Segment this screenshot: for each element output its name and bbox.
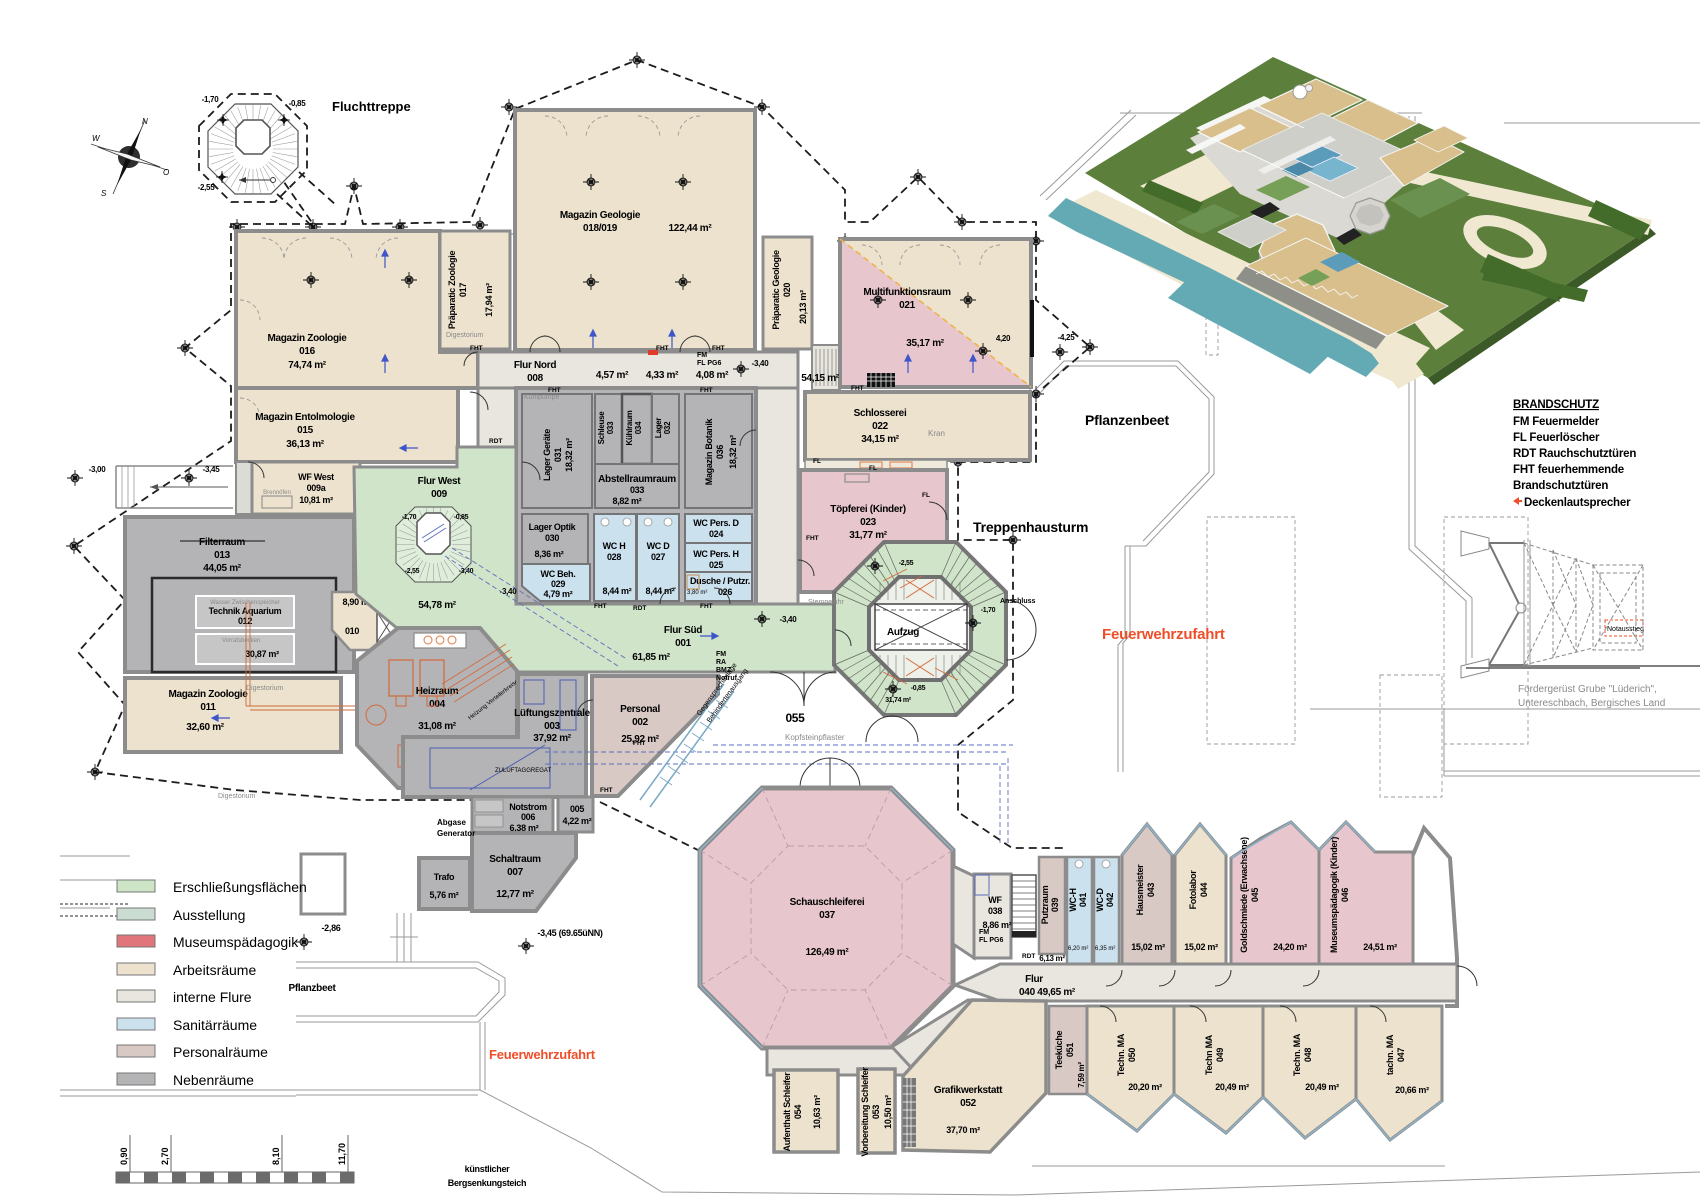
svg-text:032: 032: [663, 421, 672, 434]
svg-text:006: 006: [521, 812, 535, 822]
svg-text:-2,86: -2,86: [321, 923, 340, 933]
svg-text:Präparatic Zoologie: Präparatic Zoologie: [447, 251, 457, 330]
svg-text:Grafikwerkstatt: Grafikwerkstatt: [934, 1085, 1003, 1096]
svg-text:036: 036: [715, 445, 725, 459]
svg-text:055: 055: [785, 711, 805, 725]
svg-text:051: 051: [1065, 1043, 1075, 1057]
svg-text:-0,85: -0,85: [454, 514, 469, 521]
svg-text:20,13 m²: 20,13 m²: [798, 290, 808, 324]
svg-text:8,36 m²: 8,36 m²: [535, 549, 564, 559]
svg-text:050: 050: [1127, 1048, 1137, 1062]
svg-text:Stempeluhr: Stempeluhr: [808, 599, 844, 606]
svg-text:3,80 m²: 3,80 m²: [687, 590, 707, 596]
svg-text:54,78 m²: 54,78 m²: [418, 600, 457, 611]
svg-text:007: 007: [507, 867, 524, 878]
svg-text:-3,40: -3,40: [780, 615, 798, 624]
svg-text:030: 030: [545, 533, 559, 543]
svg-text:Notruf: Notruf: [716, 675, 738, 682]
svg-text:ZULUFTAGGREGAT: ZULUFTAGGREGAT: [495, 768, 551, 774]
svg-text:025: 025: [709, 560, 723, 570]
svg-text:35,17 m²: 35,17 m²: [906, 338, 945, 349]
svg-text:32,60 m²: 32,60 m²: [186, 722, 225, 733]
svg-text:-3,40: -3,40: [752, 359, 770, 368]
svg-text:FHT: FHT: [594, 603, 607, 610]
svg-text:Flur: Flur: [1025, 974, 1043, 985]
svg-text:FHT: FHT: [700, 387, 713, 394]
svg-text:FHT: FHT: [548, 387, 561, 394]
svg-text:022: 022: [872, 421, 889, 432]
svg-text:Feuerwehrzufahrt: Feuerwehrzufahrt: [489, 1047, 596, 1062]
svg-text:122,44 m²: 122,44 m²: [669, 223, 713, 234]
svg-text:20,20 m²: 20,20 m²: [1128, 1082, 1162, 1092]
svg-text:-3,40: -3,40: [500, 587, 518, 596]
svg-text:FM Feuermelder: FM Feuermelder: [1513, 416, 1600, 428]
svg-text:Erschließungsflächen: Erschließungsflächen: [173, 879, 307, 895]
svg-text:-2,55: -2,55: [899, 560, 914, 567]
svg-text:BMZ: BMZ: [716, 667, 732, 674]
svg-text:049: 049: [1215, 1048, 1225, 1062]
svg-text:010: 010: [345, 626, 359, 636]
svg-text:FHT: FHT: [633, 740, 646, 747]
svg-text:S: S: [101, 189, 107, 198]
svg-text:-4,25: -4,25: [1058, 333, 1076, 342]
svg-text:037: 037: [819, 910, 836, 921]
svg-text:-0,85: -0,85: [289, 99, 307, 108]
svg-text:Pflanzbeet: Pflanzbeet: [288, 983, 336, 994]
svg-text:37,70 m²: 37,70 m²: [946, 1125, 980, 1135]
svg-text:Fluchttreppe: Fluchttreppe: [332, 99, 411, 114]
svg-text:31,77 m²: 31,77 m²: [849, 530, 888, 541]
svg-text:24,51 m²: 24,51 m²: [1363, 942, 1397, 952]
svg-text:4,57 m²: 4,57 m²: [596, 370, 629, 381]
svg-text:Lager: Lager: [654, 418, 663, 438]
svg-text:18,32 m²: 18,32 m²: [728, 435, 738, 469]
svg-text:RDT Rauchschutztüren: RDT Rauchschutztüren: [1513, 448, 1636, 460]
svg-text:-0,85: -0,85: [911, 685, 926, 692]
svg-text:8,44 m²: 8,44 m²: [646, 586, 675, 596]
svg-text:047: 047: [1396, 1048, 1406, 1062]
svg-text:Generator: Generator: [437, 829, 475, 838]
svg-text:Schleuse: Schleuse: [597, 411, 606, 445]
svg-text:Deckenlautsprecher: Deckenlautsprecher: [1524, 497, 1631, 509]
svg-text:Abstellraumraum: Abstellraumraum: [598, 474, 676, 485]
svg-text:Nebenräume: Nebenräume: [173, 1072, 254, 1088]
svg-text:001: 001: [675, 638, 692, 649]
svg-text:37,92 m²: 37,92 m²: [533, 733, 572, 744]
svg-text:Untereschbach, Bergisches Land: Untereschbach, Bergisches Land: [1518, 698, 1665, 709]
svg-text:Goldschmiede (Erwachsene): Goldschmiede (Erwachsene): [1239, 837, 1249, 953]
svg-text:RDT: RDT: [489, 438, 502, 445]
svg-text:Lager Geräte: Lager Geräte: [542, 429, 552, 481]
svg-text:Kopfsteinpflaster: Kopfsteinpflaster: [785, 733, 845, 742]
svg-text:Notausstieg: Notausstieg: [1607, 626, 1644, 633]
svg-text:74,74 m²: 74,74 m²: [288, 360, 327, 371]
svg-text:040 49,65 m²: 040 49,65 m²: [1019, 987, 1076, 998]
svg-text:20,49 m²: 20,49 m²: [1305, 1082, 1339, 1092]
svg-text:054: 054: [793, 1105, 803, 1119]
svg-text:031: 031: [553, 448, 563, 462]
svg-text:5,76 m²: 5,76 m²: [430, 890, 459, 900]
svg-text:-3,45: -3,45: [203, 465, 221, 474]
svg-text:4,79 m²: 4,79 m²: [544, 589, 573, 599]
svg-text:Brandschutztüren: Brandschutztüren: [1513, 480, 1608, 492]
svg-text:-1,70: -1,70: [981, 607, 996, 614]
svg-text:018/019: 018/019: [583, 223, 618, 234]
svg-text:FM: FM: [979, 929, 989, 936]
svg-text:Sanitärräume: Sanitärräume: [173, 1017, 257, 1033]
svg-text:7,59 m²: 7,59 m²: [1077, 1062, 1086, 1088]
svg-text:8,10: 8,10: [271, 1147, 281, 1165]
svg-text:0,90: 0,90: [119, 1147, 129, 1165]
svg-text:4,22 m²: 4,22 m²: [563, 816, 592, 826]
svg-text:RDT: RDT: [633, 605, 646, 612]
svg-text:FM: FM: [697, 352, 707, 359]
svg-text:FM: FM: [716, 651, 726, 658]
svg-text:8,82 m²: 8,82 m²: [613, 496, 642, 506]
svg-text:033: 033: [630, 485, 644, 495]
svg-text:Aufenthalt Schleifer: Aufenthalt Schleifer: [782, 1072, 792, 1152]
svg-text:Fotolabor: Fotolabor: [1188, 870, 1198, 910]
svg-text:44,05 m²: 44,05 m²: [203, 563, 242, 574]
svg-text:Pflanzenbeet: Pflanzenbeet: [1085, 412, 1169, 428]
svg-text:54,15 m²: 54,15 m²: [801, 373, 840, 384]
svg-text:-1,70: -1,70: [202, 95, 220, 104]
svg-text:15,02 m²: 15,02 m²: [1131, 942, 1165, 952]
svg-text:Techn. MA: Techn. MA: [1292, 1033, 1302, 1076]
svg-text:Personalräume: Personalräume: [173, 1044, 268, 1060]
svg-text:FHT: FHT: [600, 787, 613, 794]
svg-text:002: 002: [632, 717, 649, 728]
svg-text:-2,55: -2,55: [405, 568, 420, 575]
svg-text:024: 024: [709, 529, 723, 539]
svg-text:Heizraum: Heizraum: [416, 686, 459, 697]
svg-text:023: 023: [860, 517, 877, 528]
svg-text:Techn. MA: Techn. MA: [1116, 1033, 1126, 1076]
svg-text:Digestorium: Digestorium: [446, 332, 484, 339]
svg-text:-3,00: -3,00: [89, 465, 107, 474]
svg-text:Flur Süd: Flur Süd: [664, 625, 702, 636]
svg-text:8,44 m²: 8,44 m²: [603, 586, 632, 596]
svg-text:WC Pers. H: WC Pers. H: [693, 549, 739, 559]
svg-text:36,13 m²: 36,13 m²: [286, 439, 325, 450]
svg-text:interne Flure: interne Flure: [173, 989, 252, 1005]
svg-text:Museumspädagogik (Kinder): Museumspädagogik (Kinder): [1329, 837, 1339, 953]
svg-text:-3,45 (69.65üNN): -3,45 (69.65üNN): [537, 928, 603, 938]
svg-text:20,66 m²: 20,66 m²: [1395, 1085, 1429, 1095]
svg-text:Kühlraum: Kühlraum: [625, 410, 634, 445]
svg-text:-1,70: -1,70: [402, 514, 417, 521]
svg-text:20,49 m²: 20,49 m²: [1215, 1082, 1249, 1092]
svg-text:Lüftungszentrale: Lüftungszentrale: [514, 708, 590, 719]
svg-text:Museumspädagogik: Museumspädagogik: [173, 934, 299, 950]
svg-text:FHT: FHT: [700, 603, 713, 610]
svg-text:Kran: Kran: [928, 429, 945, 438]
svg-text:041: 041: [1078, 893, 1088, 907]
svg-text:WC Pers. D: WC Pers. D: [693, 518, 739, 528]
svg-text:Hausmeister: Hausmeister: [1135, 864, 1145, 916]
svg-text:17,94 m²: 17,94 m²: [484, 283, 494, 317]
svg-text:6,35 m²: 6,35 m²: [1095, 946, 1115, 952]
svg-text:034: 034: [634, 421, 643, 434]
svg-text:043: 043: [1146, 883, 1156, 897]
svg-text:24,20 m²: 24,20 m²: [1273, 942, 1307, 952]
svg-text:Teeküche: Teeküche: [1054, 1030, 1064, 1069]
svg-text:Töpferei (Kinder): Töpferei (Kinder): [830, 504, 905, 515]
svg-text:2,70: 2,70: [160, 1147, 170, 1165]
svg-text:Feuerwehrzufahrt: Feuerwehrzufahrt: [1102, 626, 1225, 643]
svg-text:15,02 m²: 15,02 m²: [1184, 942, 1218, 952]
svg-text:009a: 009a: [307, 483, 327, 493]
svg-text:FHT: FHT: [712, 345, 725, 352]
svg-text:Abgase: Abgase: [437, 818, 466, 827]
svg-text:Schauschleiferei: Schauschleiferei: [790, 897, 865, 908]
svg-text:048: 048: [1303, 1048, 1313, 1062]
svg-text:Präparatic Geologie: Präparatic Geologie: [771, 250, 781, 330]
svg-text:005: 005: [570, 804, 584, 814]
svg-text:039: 039: [1050, 898, 1060, 912]
svg-text:Vorbereitung Schleifer: Vorbereitung Schleifer: [860, 1067, 870, 1157]
svg-text:4,08 m²: 4,08 m²: [696, 370, 729, 381]
svg-text:015: 015: [297, 425, 314, 436]
svg-text:Putzraum: Putzraum: [1040, 885, 1050, 924]
svg-text:Kühlpumpe: Kühlpumpe: [524, 394, 560, 401]
svg-text:61,85 m²: 61,85 m²: [632, 652, 671, 663]
svg-text:Arbeitsräume: Arbeitsräume: [173, 962, 256, 978]
svg-text:Anschluss: Anschluss: [1000, 598, 1036, 605]
svg-text:016: 016: [299, 346, 316, 357]
svg-text:Treppenhausturm: Treppenhausturm: [973, 519, 1088, 535]
svg-text:4,20: 4,20: [996, 334, 1011, 343]
svg-text:009: 009: [431, 489, 448, 500]
svg-text:WF West: WF West: [298, 472, 334, 482]
svg-text:052: 052: [960, 1098, 977, 1109]
svg-text:Ausstellung: Ausstellung: [173, 907, 245, 923]
svg-text:Schlosserei: Schlosserei: [854, 408, 907, 419]
svg-text:053: 053: [871, 1105, 881, 1119]
svg-text:FL: FL: [869, 465, 877, 472]
svg-text:Schaltraum: Schaltraum: [489, 854, 541, 865]
svg-text:045: 045: [1250, 888, 1260, 902]
svg-text:Magazin Botanik: Magazin Botanik: [704, 417, 714, 485]
svg-text:Flur West: Flur West: [418, 476, 462, 487]
svg-text:RDT: RDT: [1022, 953, 1035, 960]
svg-text:Technik Aquarium: Technik Aquarium: [209, 606, 282, 616]
svg-text:126,49 m²: 126,49 m²: [806, 947, 850, 958]
svg-text:020: 020: [782, 283, 792, 297]
svg-text:FL PG6: FL PG6: [979, 937, 1003, 944]
svg-text:WC-D: WC-D: [1095, 888, 1105, 912]
svg-text:013: 013: [214, 550, 231, 561]
svg-text:10,81 m²: 10,81 m²: [299, 495, 333, 505]
svg-text:11,70: 11,70: [337, 1143, 347, 1165]
svg-text:FL Feuerlöscher: FL Feuerlöscher: [1513, 432, 1600, 444]
svg-text:FHT: FHT: [470, 345, 483, 352]
svg-text:029: 029: [551, 579, 565, 589]
svg-text:Personal: Personal: [620, 704, 660, 715]
svg-text:027: 027: [651, 552, 665, 562]
svg-text:Digestorium: Digestorium: [246, 685, 284, 692]
svg-text:008: 008: [527, 373, 544, 384]
svg-text:028: 028: [607, 552, 621, 562]
svg-text:RA: RA: [716, 659, 726, 666]
svg-text:künstlicher: künstlicher: [465, 1164, 511, 1174]
svg-text:WC D: WC D: [647, 541, 671, 551]
svg-text:FHT: FHT: [806, 535, 819, 542]
svg-text:12,77 m²: 12,77 m²: [496, 889, 535, 900]
svg-text:017: 017: [458, 283, 468, 297]
svg-text:FL: FL: [922, 492, 930, 499]
svg-text:Flur Nord: Flur Nord: [514, 360, 556, 371]
svg-text:011: 011: [200, 702, 216, 713]
svg-text:BRANDSCHUTZ: BRANDSCHUTZ: [1513, 399, 1599, 411]
svg-text:31,74 m²: 31,74 m²: [885, 697, 912, 704]
svg-text:N: N: [142, 117, 148, 126]
svg-text:6,13 m²: 6,13 m²: [1039, 954, 1065, 963]
svg-text:18,32 m²: 18,32 m²: [564, 438, 574, 472]
svg-text:038: 038: [988, 906, 1002, 916]
svg-text:Bergsenkungsteich: Bergsenkungsteich: [448, 1178, 526, 1188]
svg-text:FHT feuerhemmende: FHT feuerhemmende: [1513, 464, 1624, 476]
svg-text:Aufzug: Aufzug: [887, 627, 919, 638]
svg-text:042: 042: [1105, 893, 1115, 907]
svg-text:Brennöfen: Brennöfen: [263, 490, 291, 496]
svg-text:Filterraum: Filterraum: [199, 537, 245, 548]
svg-text:Magazin Zoologie: Magazin Zoologie: [168, 689, 248, 700]
svg-text:10,50 m²: 10,50 m²: [883, 1095, 893, 1129]
svg-text:Magazin Entolmologie: Magazin Entolmologie: [255, 412, 355, 423]
svg-text:044: 044: [1199, 883, 1209, 897]
svg-text:tachn. MA: tachn. MA: [1385, 1034, 1395, 1075]
svg-text:-2,55: -2,55: [198, 183, 216, 192]
svg-text:021: 021: [899, 300, 916, 311]
svg-text:4,33 m²: 4,33 m²: [646, 370, 679, 381]
svg-text:FL: FL: [813, 458, 821, 465]
svg-text:Techn MA: Techn MA: [1204, 1034, 1214, 1075]
svg-text:WF: WF: [988, 895, 1002, 905]
svg-text:Fördergerüst Grube "Lüderich",: Fördergerüst Grube "Lüderich",: [1518, 684, 1657, 695]
svg-text:Magazin Geologie: Magazin Geologie: [560, 210, 641, 221]
svg-text:FL PG6: FL PG6: [697, 360, 721, 367]
svg-text:Vorratsbecken: Vorratsbecken: [222, 638, 260, 644]
svg-text:10,63 m²: 10,63 m²: [812, 1095, 822, 1129]
svg-text:WC-H: WC-H: [1068, 888, 1078, 911]
svg-text:Notstrom: Notstrom: [509, 802, 547, 812]
svg-text:033: 033: [606, 421, 615, 434]
svg-text:Lager Optik: Lager Optik: [529, 522, 577, 532]
svg-text:31,08 m²: 31,08 m²: [418, 721, 457, 732]
svg-text:003: 003: [544, 721, 561, 732]
svg-text:Trafo: Trafo: [434, 872, 455, 882]
svg-text:6,20 m²: 6,20 m²: [1068, 946, 1088, 952]
svg-text:Magazin Zoologie: Magazin Zoologie: [267, 333, 347, 344]
svg-text:WC H: WC H: [603, 541, 626, 551]
svg-text:046: 046: [1340, 888, 1350, 902]
svg-text:34,15 m²: 34,15 m²: [861, 434, 900, 445]
svg-text:WC Beh.: WC Beh.: [541, 569, 576, 579]
svg-text:Digestorium: Digestorium: [218, 793, 256, 800]
svg-text:O: O: [163, 168, 169, 177]
svg-text:FHT: FHT: [851, 385, 864, 392]
